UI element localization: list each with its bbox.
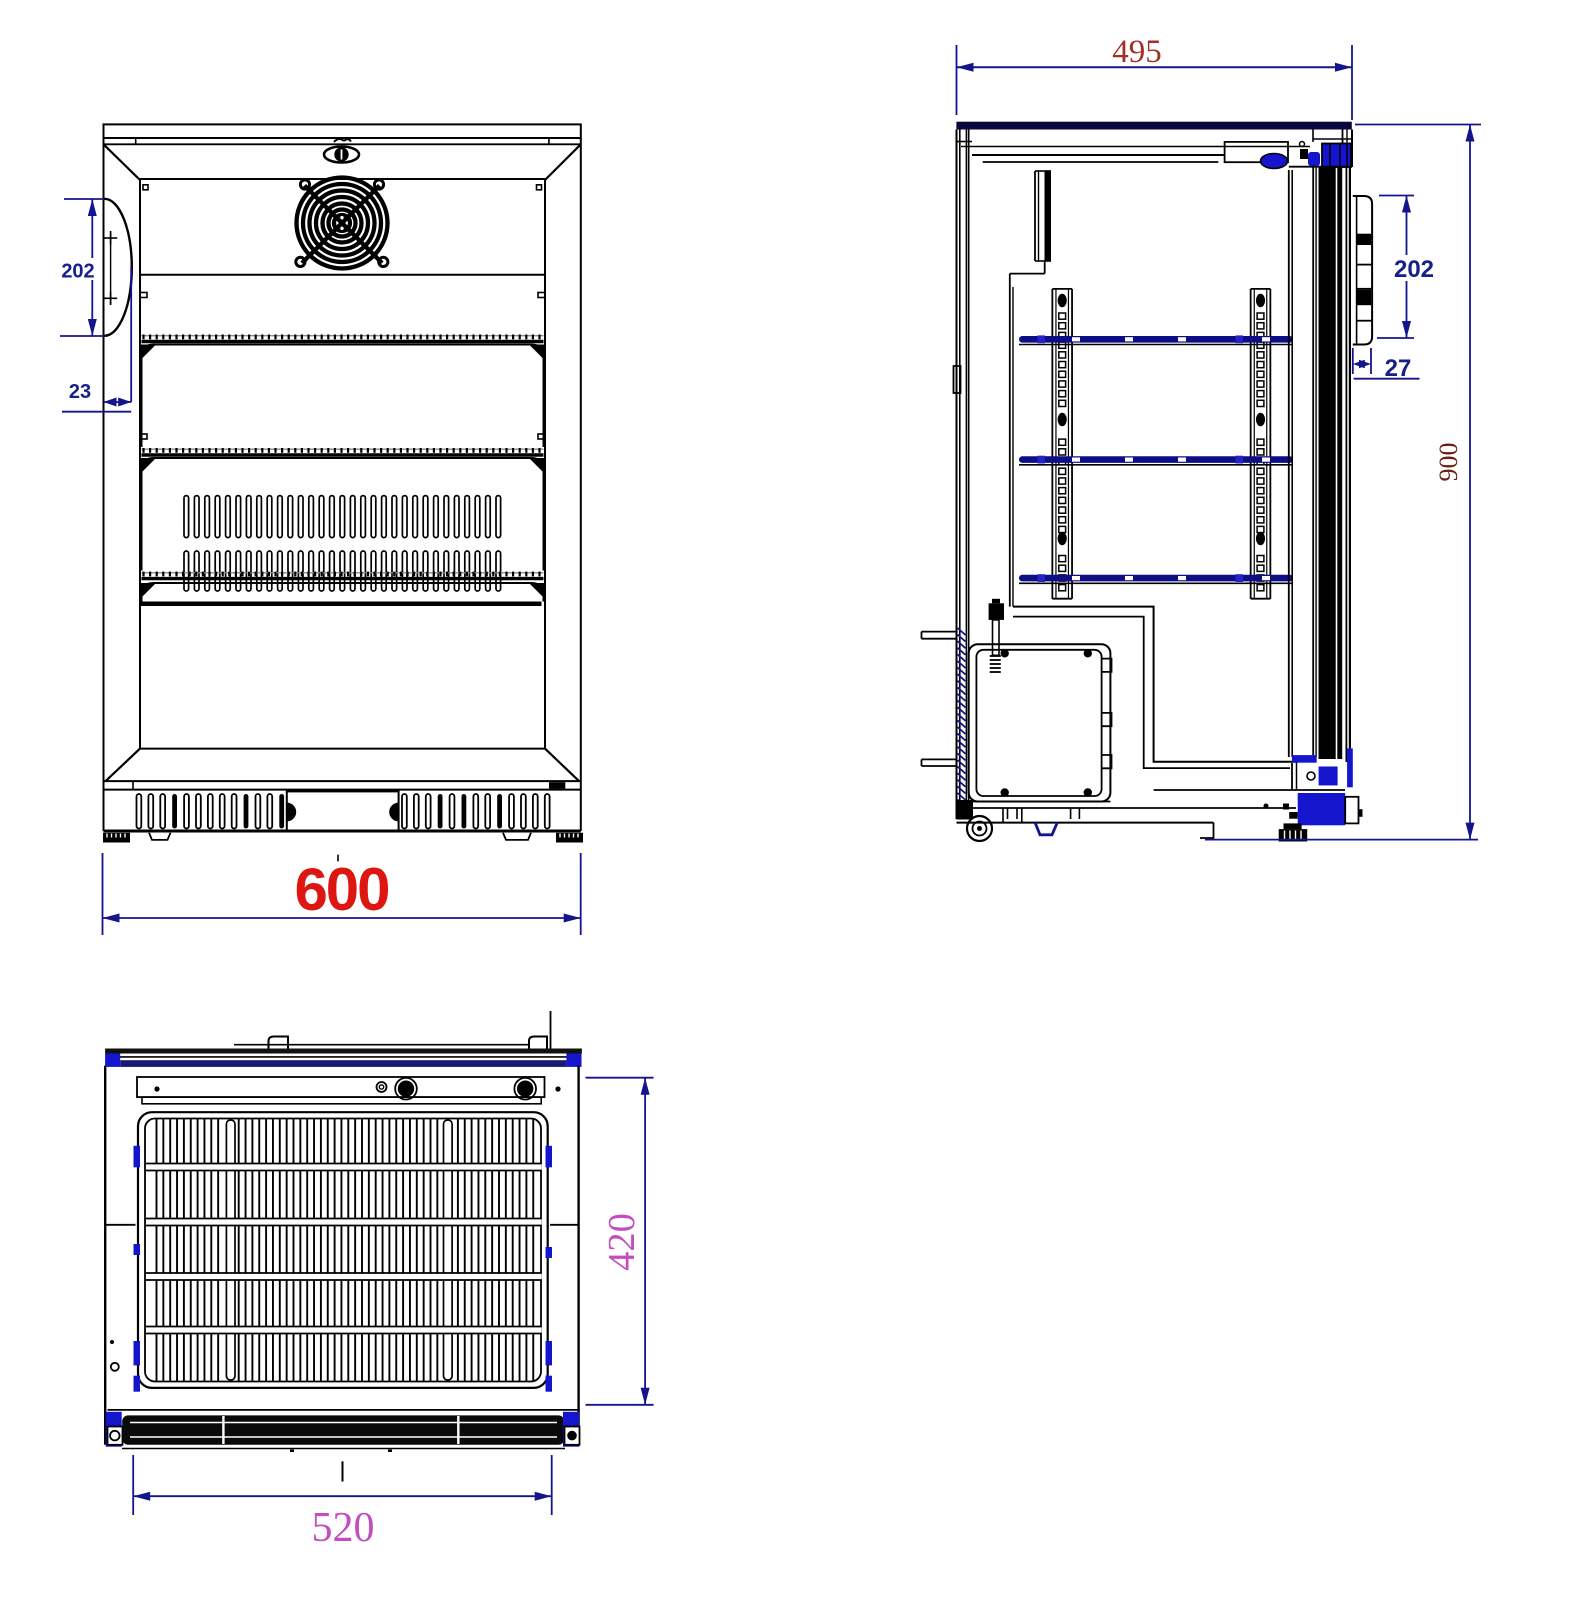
svg-text:520: 520 [312,1505,375,1551]
svg-text:23: 23 [69,381,91,403]
svg-text:600: 600 [294,856,388,923]
svg-text:202: 202 [61,261,94,283]
svg-text:420: 420 [601,1213,643,1271]
svg-text:202: 202 [1394,256,1434,283]
svg-text:900: 900 [1434,443,1463,482]
svg-text:495: 495 [1112,34,1162,70]
